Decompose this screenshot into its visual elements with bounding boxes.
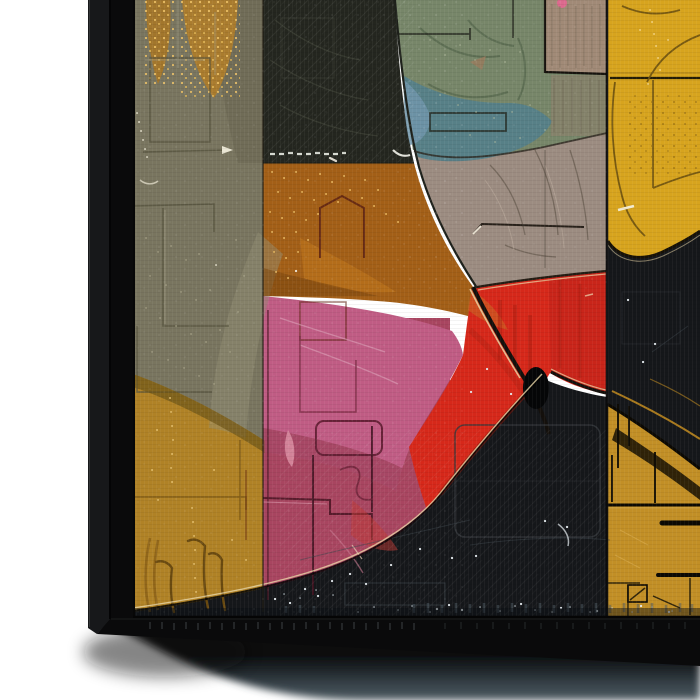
frame-left-side xyxy=(88,0,111,634)
frame-front-left xyxy=(111,0,133,619)
canvas-speckle-texture-2 xyxy=(395,0,607,290)
canvas-artwork xyxy=(133,0,700,618)
framed-canvas-artwork xyxy=(0,0,700,700)
